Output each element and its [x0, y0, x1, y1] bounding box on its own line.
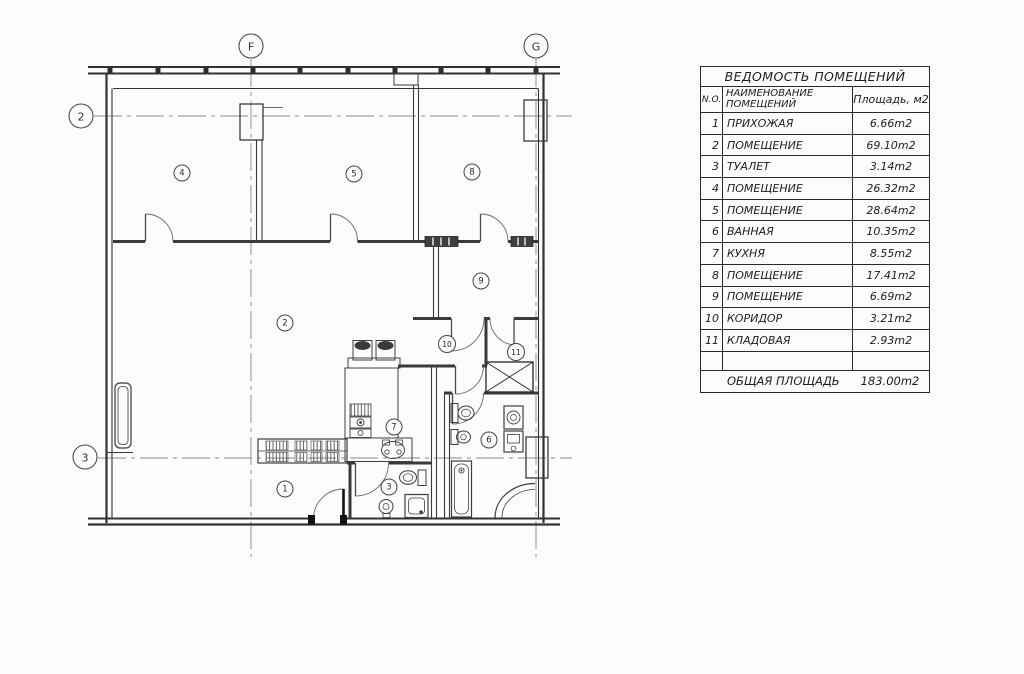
table-row: 1ПРИХОЖАЯ6.66m2 [701, 113, 929, 135]
table-row: 10КОРИДОР3.21m2 [701, 308, 929, 330]
cell-area: 10.35m2 [853, 221, 929, 242]
cell-area: 8.55m2 [853, 243, 929, 264]
cell-n: 9 [701, 287, 722, 308]
room-11-label: 11 [511, 348, 521, 357]
cell-n: 3 [701, 156, 722, 177]
table-header-row: N.O. НАИМЕНОВАНИЕ ПОМЕЩЕНИЙ Площадь, м2 [701, 87, 929, 113]
table-empty-row [701, 352, 929, 371]
room-10-label: 10 [442, 340, 452, 349]
cell-area: 6.66m2 [853, 113, 929, 134]
cell-name: ПОМЕЩЕНИЕ [722, 178, 853, 199]
cell-n: 2 [701, 135, 722, 156]
entrance-door-arc [314, 489, 344, 519]
door-corridor-arc [456, 366, 484, 394]
table-title: ВЕДОМОСТЬ ПОМЕЩЕНИЙ [701, 67, 929, 87]
wc-tank [418, 470, 426, 486]
table-row: 6ВАННАЯ10.35m2 [701, 221, 929, 243]
total-value: 183.00m2 [851, 374, 929, 388]
cell-area: 6.69m2 [853, 287, 929, 308]
cell-name: ПОМЕЩЕНИЕ [722, 135, 853, 156]
cell-area: 17.41m2 [853, 265, 929, 286]
room6-fixtures [451, 404, 535, 518]
cell-name: КУХНЯ [722, 243, 853, 264]
cell-name: КЛАДОВАЯ [722, 330, 853, 351]
kitchen-fixtures [345, 341, 412, 462]
header-no: N.O. [701, 87, 722, 112]
grid-marker-f-label: F [248, 41, 254, 54]
door-room8-arc [481, 214, 509, 242]
table-row: 8ПОМЕЩЕНИЕ17.41m2 [701, 265, 929, 287]
cell-area: 3.14m2 [853, 156, 929, 177]
cell-area: 28.64m2 [853, 200, 929, 221]
cell-area: 2.93m2 [853, 330, 929, 351]
floorplan-page: { "plan": { "grid_markers": [ {"label": … [0, 0, 1024, 674]
header-name-line2: ПОМЕЩЕНИЙ [726, 100, 813, 111]
cell-name: ПОМЕЩЕНИЕ [722, 200, 853, 221]
facade-ticks [108, 68, 539, 73]
room-7-label: 7 [391, 423, 396, 433]
wc2-bowl [458, 406, 474, 420]
table-row: 5ПОМЕЩЕНИЕ28.64m2 [701, 200, 929, 222]
header-name-line1: НАИМЕНОВАНИЕ [726, 89, 813, 100]
cell-n: 11 [701, 330, 722, 351]
room-number-markers: 1 2 3 4 5 6 7 8 9 10 11 [174, 164, 525, 497]
cell-n: 1 [701, 113, 722, 134]
cell-name: ПОМЕЩЕНИЕ [722, 265, 853, 286]
sink-drainer [350, 404, 371, 416]
pilaster-g-bottom [526, 437, 548, 478]
grid-axes [94, 59, 572, 557]
cell-area: 26.32m2 [853, 178, 929, 199]
grid-marker-2-label: 2 [78, 111, 85, 124]
outer-walls [88, 67, 560, 525]
room-8-label: 8 [469, 168, 474, 178]
door-room4-arc [146, 214, 174, 242]
entrance-jamb-left [308, 515, 315, 525]
room9-left-wall [434, 244, 439, 319]
header-area: Площадь, м2 [853, 87, 929, 112]
shower-tray [495, 484, 535, 518]
cell-n: 8 [701, 265, 722, 286]
door-room11-arc [490, 319, 514, 346]
cell-name: ТУАЛЕТ [722, 156, 853, 177]
kitchen-table [382, 442, 405, 459]
cell-n: 7 [701, 243, 722, 264]
grid-marker-3-label: 3 [82, 452, 89, 465]
door-room9-arc [452, 319, 485, 352]
wardrobe [258, 439, 347, 463]
cell-area: 3.21m2 [853, 308, 929, 329]
total-label: ОБЩАЯ ПЛОЩАДЬ [701, 374, 851, 388]
table-row: 3ТУАЛЕТ3.14m2 [701, 156, 929, 178]
radiator [115, 383, 131, 448]
table-row: 4ПОМЕЩЕНИЕ26.32m2 [701, 178, 929, 200]
vent-shaft [486, 362, 533, 392]
table-row: 2ПОМЕЩЕНИЕ69.10m2 [701, 135, 929, 157]
entrance-jamb-right [340, 515, 347, 525]
cell-name: ПОМЕЩЕНИЕ [722, 287, 853, 308]
table-row: 11КЛАДОВАЯ2.93m2 [701, 330, 929, 352]
bidet-bowl [457, 431, 471, 443]
door-room5-arc [331, 214, 358, 242]
room-schedule-table: ВЕДОМОСТЬ ПОМЕЩЕНИЙ N.O. НАИМЕНОВАНИЕ ПО… [700, 66, 930, 393]
room-9-label: 9 [478, 277, 483, 287]
table-body: 1ПРИХОЖАЯ6.66m22ПОМЕЩЕНИЕ69.10m23ТУАЛЕТ3… [701, 113, 929, 352]
table-total-row: ОБЩАЯ ПЛОЩАДЬ 183.00m2 [701, 371, 929, 392]
grid-markers: F G 2 3 [69, 34, 548, 469]
cell-area: 69.10m2 [853, 135, 929, 156]
cell-n: 5 [701, 200, 722, 221]
room-6-label: 6 [486, 436, 491, 446]
pedestal-sink [379, 500, 393, 514]
cell-name: ПРИХОЖАЯ [722, 113, 853, 134]
header-name: НАИМЕНОВАНИЕ ПОМЕЩЕНИЙ [722, 87, 853, 112]
room-5-label: 5 [351, 170, 356, 180]
cell-n: 4 [701, 178, 722, 199]
pilaster-f [240, 104, 263, 140]
room-1-label: 1 [282, 485, 287, 495]
cell-n: 6 [701, 221, 722, 242]
chase-wall-1 [432, 366, 437, 518]
table-row: 9ПОМЕЩЕНИЕ6.69m2 [701, 287, 929, 309]
chase-wall-2 [445, 393, 450, 518]
room-3-label: 3 [386, 483, 391, 493]
room-4-label: 4 [179, 169, 184, 179]
cell-name: КОРИДОР [722, 308, 853, 329]
grid-marker-g-label: G [532, 41, 541, 54]
cell-name: ВАННАЯ [722, 221, 853, 242]
doors [146, 214, 515, 525]
room-2-label: 2 [282, 319, 287, 329]
table-row: 7КУХНЯ8.55m2 [701, 243, 929, 265]
cell-n: 10 [701, 308, 722, 329]
wc-bowl [400, 471, 417, 485]
